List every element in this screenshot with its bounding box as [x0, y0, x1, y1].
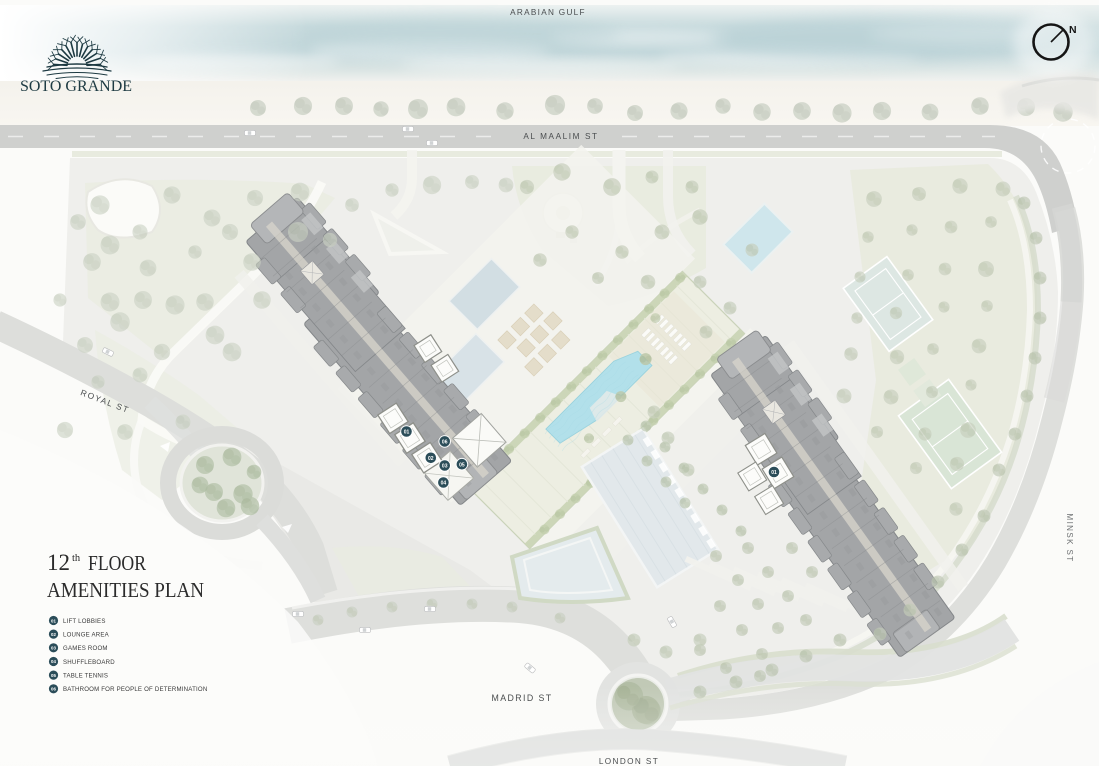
svg-text:SOTO GRANDE: SOTO GRANDE	[20, 78, 132, 95]
svg-text:N: N	[1069, 24, 1077, 36]
svg-text:06: 06	[442, 440, 448, 446]
svg-text:04: 04	[51, 659, 56, 664]
svg-text:AL MAALIM ST: AL MAALIM ST	[523, 132, 598, 141]
svg-text:05: 05	[459, 462, 465, 468]
svg-text:MINSK ST: MINSK ST	[1065, 514, 1074, 563]
svg-text:03: 03	[442, 464, 448, 470]
svg-text:LIFT LOBBIES: LIFT LOBBIES	[63, 618, 106, 625]
svg-text:LONDON ST: LONDON ST	[599, 757, 659, 766]
svg-text:03: 03	[51, 646, 56, 651]
svg-text:SHUFFLEBOARD: SHUFFLEBOARD	[63, 659, 115, 666]
svg-text:TABLE TENNIS: TABLE TENNIS	[63, 673, 108, 680]
svg-text:02: 02	[51, 632, 56, 637]
svg-text:02: 02	[428, 456, 434, 462]
svg-text:th: th	[72, 553, 81, 564]
svg-text:12: 12	[47, 550, 70, 575]
svg-text:01: 01	[771, 470, 777, 476]
svg-text:ARABIAN GULF: ARABIAN GULF	[510, 8, 586, 17]
svg-text:GAMES ROOM: GAMES ROOM	[63, 645, 108, 652]
svg-text:LOUNGE AREA: LOUNGE AREA	[63, 632, 110, 639]
svg-text:05: 05	[51, 673, 56, 678]
svg-text:MADRID ST: MADRID ST	[492, 693, 553, 703]
svg-text:AMENITIES PLAN: AMENITIES PLAN	[47, 578, 204, 602]
svg-text:BATHROOM FOR PEOPLE OF DETERMI: BATHROOM FOR PEOPLE OF DETERMINATION	[63, 686, 207, 693]
svg-text:04: 04	[441, 481, 447, 487]
svg-text:01: 01	[404, 430, 410, 436]
svg-text:01: 01	[51, 618, 56, 623]
svg-text:06: 06	[51, 687, 56, 692]
svg-text:FLOOR: FLOOR	[88, 551, 147, 575]
